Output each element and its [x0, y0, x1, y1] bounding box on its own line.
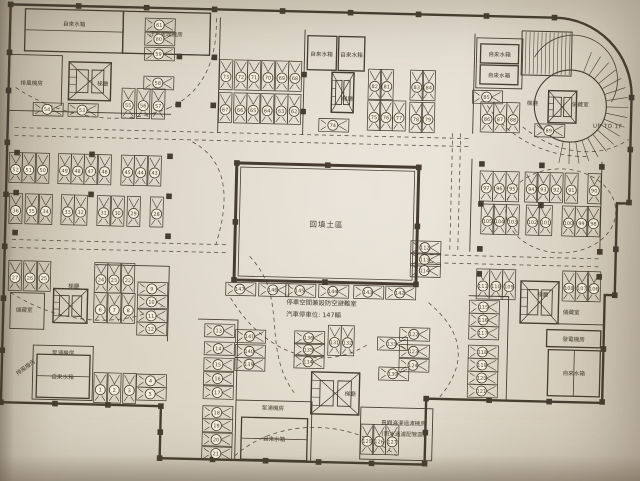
parking-stall-74: 74 [319, 118, 349, 132]
stall-number: 97 [483, 186, 490, 192]
parking-stall-75: 75 [367, 100, 381, 130]
stall-number: 17 [214, 390, 221, 396]
stall-number: 98 [590, 221, 597, 227]
ramp-tread [575, 142, 579, 164]
ramp-tread [606, 97, 628, 101]
parking-stall-55: 55 [121, 88, 135, 118]
parking-stall-29: 29 [127, 196, 141, 226]
stall-number: 54 [44, 107, 51, 113]
parking-stall-12: 12 [137, 322, 167, 336]
backfill-label: 回填土區 [309, 219, 343, 230]
parking-stall-99: 99 [575, 206, 589, 236]
parking-stall-103: 103 [506, 205, 520, 235]
column [0, 399, 4, 405]
stall-number: 12 [147, 327, 154, 333]
parking-stall-125: 125 [360, 424, 374, 454]
parking-stall-89: 89 [535, 124, 565, 138]
ramp-up-label: UP TO 1F [593, 124, 623, 131]
stall-number: 75 [371, 115, 378, 121]
column [486, 397, 492, 403]
parking-stall-10: 10 [137, 295, 167, 309]
parking-stall-105: 105 [481, 204, 495, 234]
parking-stall-109: 109 [502, 269, 516, 299]
stall-number: 32 [77, 210, 84, 216]
ramp-tread [589, 56, 600, 75]
floor-plan-photo: 回填土區 自來水箱汙水處理機房自來水箱自來水箱自來水箱自來水箱發電機房自來水箱自… [0, 0, 640, 481]
ramp-tread [606, 113, 628, 117]
lane-dash [522, 127, 629, 153]
stall-number: 60 [156, 37, 163, 43]
parking-stall-27: 27 [8, 260, 22, 290]
stall-number: 142 [395, 291, 405, 297]
room: 汙水處理機房 [123, 11, 211, 55]
parking-stall-13: 13 [205, 324, 235, 338]
column [369, 460, 375, 466]
parking-stall-4: 4 [136, 374, 166, 388]
room-label: 梯廳 [527, 99, 539, 107]
column [3, 191, 9, 197]
parking-stall-143: 143 [354, 285, 384, 299]
parking-stall-15: 15 [204, 358, 234, 372]
stall-number: 62 [291, 109, 298, 115]
stall-number: 107 [577, 286, 587, 292]
column [157, 455, 163, 461]
column [234, 160, 240, 166]
column [167, 153, 173, 159]
stall-number: 87 [497, 117, 504, 123]
lane-dash [12, 247, 226, 252]
stall-number: 140 [244, 349, 254, 355]
parking-stall-28: 28 [150, 197, 164, 227]
parking-stall-94: 94 [524, 172, 538, 202]
column [316, 459, 322, 465]
parking-stall-71: 71 [247, 60, 261, 90]
parking-stall-23: 23 [107, 263, 121, 293]
parking-stall-54: 54 [33, 102, 63, 116]
stall-number: 77 [396, 116, 403, 122]
stall-number: 132 [343, 340, 353, 346]
stall-number: 72 [238, 75, 245, 81]
room: 發電機房 [546, 330, 600, 348]
lane-dash [458, 133, 461, 251]
column [4, 139, 10, 145]
parking-stall-20: 20 [202, 433, 232, 447]
parking-stall-144: 144 [319, 284, 349, 298]
stall-number: 141 [245, 334, 255, 340]
stall-number: 51 [25, 168, 32, 174]
room-label: 儲藏室 [572, 100, 589, 108]
stall-number: 102 [528, 220, 538, 226]
stall-number: 130 [388, 372, 398, 378]
parking-stall-36: 36 [9, 193, 23, 223]
lane-dash [14, 136, 470, 147]
room-label: 自來水箱 [340, 50, 363, 59]
parking-stall-98: 98 [587, 207, 601, 237]
stall-number: 111 [478, 284, 488, 290]
parking-stall-50: 50 [36, 153, 50, 183]
column [0, 347, 5, 353]
stall-number: 5 [149, 392, 152, 398]
column [8, 2, 14, 8]
room: 自來水箱 [241, 417, 308, 461]
stall-number: 28 [153, 212, 160, 218]
parking-stall-127: 127 [385, 425, 399, 455]
room-label: 梯廳 [342, 94, 354, 102]
lane-dash [429, 263, 599, 267]
stall-number: 56 [140, 103, 147, 109]
lane-dash [190, 142, 226, 245]
ramp-tread [606, 107, 628, 108]
column [263, 458, 269, 464]
partition-wall [8, 110, 171, 114]
stall-number: 139 [244, 362, 254, 368]
room-label: 自來水箱 [51, 372, 74, 381]
stall-number: 146 [268, 288, 278, 294]
column [629, 95, 635, 101]
column [613, 246, 619, 252]
column [477, 246, 483, 252]
stall-number: 135 [303, 347, 313, 353]
lane-dash [450, 133, 453, 251]
parking-stall-97: 97 [480, 171, 494, 201]
parking-stall-79: 79 [421, 102, 435, 132]
stall-number: 121 [476, 389, 486, 395]
stall-number: 18 [213, 410, 220, 416]
stall-number: 63 [278, 109, 285, 115]
parking-stall-81: 81 [380, 69, 394, 99]
stall-number: 88 [510, 117, 517, 123]
stall-number: 79 [425, 117, 432, 123]
parking-stall-51: 51 [22, 153, 36, 183]
stall-number: 96 [496, 186, 503, 192]
stall-number: 3 [128, 388, 131, 394]
room-label: 排風機房 [20, 79, 43, 88]
room-label: 梯廳 [97, 80, 109, 88]
stall-number: 8 [127, 308, 130, 314]
ramp-tread [581, 140, 589, 161]
stall-number: 48 [74, 169, 81, 175]
stall-number: 114 [419, 268, 429, 274]
column [177, 54, 183, 60]
stall-number: 71 [251, 75, 258, 81]
stall-number: 35 [28, 209, 35, 215]
stall-number: 123 [408, 349, 418, 355]
room-label: 儲藏室 [563, 308, 580, 316]
room-label: 發電機房 [562, 335, 585, 344]
stall-number: 89 [545, 128, 552, 134]
parking-stall-9: 9 [138, 282, 168, 296]
lane-dash [430, 255, 600, 259]
stall-number: 46 [101, 169, 108, 175]
parking-stall-31: 31 [97, 196, 111, 226]
parking-stall-119: 119 [468, 358, 498, 372]
stall-number: 36 [12, 208, 19, 214]
shelter-note: 停車空間兼設防空避難室 [286, 297, 357, 308]
stall-number: 21 [212, 451, 219, 457]
room: 自來水箱 [338, 36, 365, 71]
room-label: 梯廳 [537, 290, 549, 298]
column [1, 295, 7, 301]
column [626, 200, 632, 206]
parking-stall-82: 82 [368, 69, 382, 99]
parking-stall-61: 61 [145, 18, 175, 32]
parking-stall-24: 24 [94, 263, 108, 293]
column [599, 399, 605, 405]
stall-number: 124 [408, 363, 418, 369]
column [597, 249, 603, 255]
column [612, 292, 618, 298]
parking-stall-48: 48 [71, 154, 85, 184]
stall-number: 33 [64, 210, 71, 216]
stall-number: 82 [371, 84, 378, 90]
stall-number: 144 [328, 289, 338, 295]
stall-number: 85 [483, 95, 490, 101]
parking-stall-57: 57 [151, 89, 165, 119]
parking-stall-30: 30 [111, 196, 125, 226]
parking-stall-14: 14 [204, 342, 234, 356]
stall-number: 104 [495, 219, 505, 225]
parking-stall-121: 121 [467, 384, 497, 398]
parking-stall-104: 104 [493, 204, 507, 234]
stall-number: 55 [125, 103, 132, 109]
parking-stall-25: 25 [37, 261, 51, 291]
parking-stall-34: 34 [39, 194, 53, 224]
stall-number: 92 [553, 187, 560, 193]
stall-number: 58 [155, 81, 162, 87]
stall-number: 2 [113, 388, 116, 394]
stall-number: 25 [41, 276, 48, 282]
stall-number: 122 [409, 332, 419, 338]
stall-number: 53 [79, 108, 86, 114]
room-label: (雨水過濾配管區) [381, 430, 425, 439]
parking-stall-58: 58 [144, 76, 174, 90]
column [301, 72, 307, 78]
stall-number: 67 [222, 107, 229, 113]
stall-number: 94 [528, 187, 535, 193]
stall-number: 19 [213, 423, 220, 429]
stall-number: 13 [215, 328, 222, 334]
stall-number: 4 [149, 379, 152, 385]
column [413, 281, 419, 287]
column [6, 87, 12, 93]
parking-stall-53: 53 [68, 103, 98, 117]
parking-stall-47: 47 [84, 154, 98, 184]
parking-stall-83: 83 [410, 70, 424, 100]
stall-number: 103 [508, 219, 518, 225]
ramp-tread [559, 141, 563, 163]
stall-number: 68 [292, 76, 299, 82]
column [484, 13, 490, 19]
column [231, 277, 237, 283]
room-label: 梯廳 [68, 282, 80, 290]
column [422, 461, 428, 467]
parking-stall-52: 52 [9, 152, 23, 182]
straight-ramp [521, 31, 572, 76]
stall-number: 126 [374, 439, 384, 445]
stall-number: 50 [39, 168, 46, 174]
stall-number: 45 [124, 170, 131, 176]
stall-number: 127 [387, 440, 397, 446]
parking-stall-102: 102 [526, 205, 540, 235]
parking-stall-107: 107 [575, 271, 589, 301]
stall-number: 26 [27, 276, 34, 282]
parking-stall-146: 146 [259, 283, 289, 297]
stall-number: 131 [330, 340, 340, 346]
parking-stall-78: 78 [409, 102, 423, 132]
column [416, 11, 422, 17]
ramp-tread [602, 78, 621, 89]
stall-number: 69 [279, 76, 286, 82]
parking-stall-72: 72 [234, 60, 248, 90]
column [414, 224, 420, 230]
stall-number: 113 [420, 257, 430, 263]
stall-number: 136 [304, 335, 314, 341]
stall-number: 105 [483, 219, 493, 225]
stall-number: 57 [155, 104, 162, 110]
spiral-ramp [519, 31, 630, 166]
stall-number: 70 [265, 75, 272, 81]
stall-number: 1 [99, 387, 102, 393]
stall-number: 119 [477, 363, 487, 369]
parking-stall-3: 3 [122, 373, 136, 403]
stall-number: 6 [99, 307, 102, 313]
column [627, 147, 633, 153]
stall-number: 117 [478, 331, 488, 337]
parking-stall-5: 5 [136, 387, 166, 401]
parking-stall-66: 66 [233, 93, 247, 123]
stall-number: 76 [383, 115, 390, 121]
parking-stall-118: 118 [468, 345, 498, 359]
stall-number: 91 [568, 188, 575, 194]
column [158, 403, 164, 409]
parking-stall-147: 147 [226, 282, 256, 296]
stall-number: 64 [264, 108, 271, 114]
room: 自來水箱 [547, 350, 600, 397]
stall-number: 90 [591, 188, 598, 194]
parking-stall-62: 62 [287, 94, 301, 124]
stall-number: 115 [479, 305, 489, 311]
parking-stall-70: 70 [261, 61, 275, 91]
parking-stall-131: 131 [328, 325, 342, 355]
stall-number: 125 [362, 439, 372, 445]
stall-number: 78 [413, 117, 420, 123]
parking-stall-77: 77 [392, 101, 406, 131]
parking-stall-67: 67 [218, 92, 232, 122]
room-label: 排風機房 [14, 357, 37, 377]
stall-number: 116 [478, 318, 488, 324]
parking-stall-95: 95 [505, 172, 519, 202]
partition-wall [473, 34, 475, 134]
parking-stall-76: 76 [379, 100, 393, 130]
stall-number: 27 [12, 275, 19, 281]
stall-number: 52 [12, 167, 19, 173]
parking-stall-2: 2 [107, 373, 121, 403]
column [212, 54, 218, 60]
parking-stall-44: 44 [134, 155, 148, 185]
column [7, 49, 13, 55]
ramp-tread [587, 138, 598, 157]
room-label: 泵浦機房 [262, 404, 285, 413]
building-outline [0, 4, 633, 469]
column [552, 15, 558, 21]
backfill-block: 回填土區 [234, 163, 419, 284]
stall-number: 20 [213, 437, 220, 443]
column [233, 219, 239, 225]
parking-stall-120: 120 [468, 371, 498, 385]
parking-stall-96: 96 [492, 171, 506, 201]
stall-number: 84 [425, 85, 432, 91]
parking-stall-123: 123 [399, 344, 429, 358]
parking-stall-7: 7 [107, 293, 121, 323]
column [76, 3, 82, 9]
stall-number: 74 [330, 123, 337, 129]
parking-stall-45: 45 [121, 155, 135, 185]
room: 自來水箱 [480, 44, 518, 64]
parking-stall-11: 11 [137, 309, 167, 323]
room-label: 梯廳 [345, 390, 357, 398]
parking-stall-18: 18 [203, 406, 233, 420]
room-label: 自來水箱 [488, 71, 511, 80]
stall-number: 10 [148, 300, 155, 306]
stall-number: 43 [151, 171, 158, 177]
partition-wall [218, 18, 221, 133]
parking-stall-68: 68 [288, 61, 302, 91]
stall-number: 101 [541, 220, 551, 226]
parking-stall-92: 92 [549, 173, 563, 203]
parking-stall-32: 32 [74, 195, 88, 225]
parking-stall-43: 43 [148, 156, 162, 186]
column [12, 230, 18, 236]
column [175, 102, 181, 108]
stall-number: 9 [150, 287, 153, 293]
stall-number: 11 [148, 314, 155, 320]
stall-number: 16 [214, 376, 221, 382]
parking-stall-88: 88 [506, 103, 520, 133]
stall-number: 145 [295, 288, 305, 294]
ramp-tread [583, 52, 591, 73]
lane-dash [12, 239, 226, 244]
column [348, 10, 354, 16]
parking-stall-136: 136 [294, 331, 324, 345]
stall-number: 44 [137, 170, 144, 176]
parking-stall-1: 1 [93, 373, 107, 403]
parking-stall-110: 110 [489, 269, 503, 299]
parking-stall-126: 126 [372, 424, 386, 454]
column [13, 190, 19, 196]
column [599, 164, 605, 170]
room: 自來水箱 [25, 9, 124, 53]
parking-stall-117: 117 [469, 326, 499, 340]
parking-stall-134: 134 [294, 355, 324, 369]
column [88, 192, 94, 198]
parking-stall-101: 101 [539, 205, 553, 235]
room-label: 自來水箱 [63, 20, 86, 29]
parking-stall-26: 26 [23, 261, 37, 291]
column [144, 5, 150, 11]
parking-stall-139: 139 [235, 357, 265, 371]
parking-stall-140: 140 [235, 344, 265, 358]
parking-stall-17: 17 [203, 386, 233, 400]
column [322, 279, 328, 285]
stall-number: 24 [98, 277, 105, 283]
room-label: 自來水箱 [310, 50, 333, 59]
stall-number: 143 [363, 290, 373, 296]
stall-number: 31 [100, 210, 107, 216]
room: 自來水箱 [36, 354, 90, 398]
parking-stall-35: 35 [25, 194, 39, 224]
column [52, 401, 58, 407]
stall-number: 100 [564, 221, 574, 227]
